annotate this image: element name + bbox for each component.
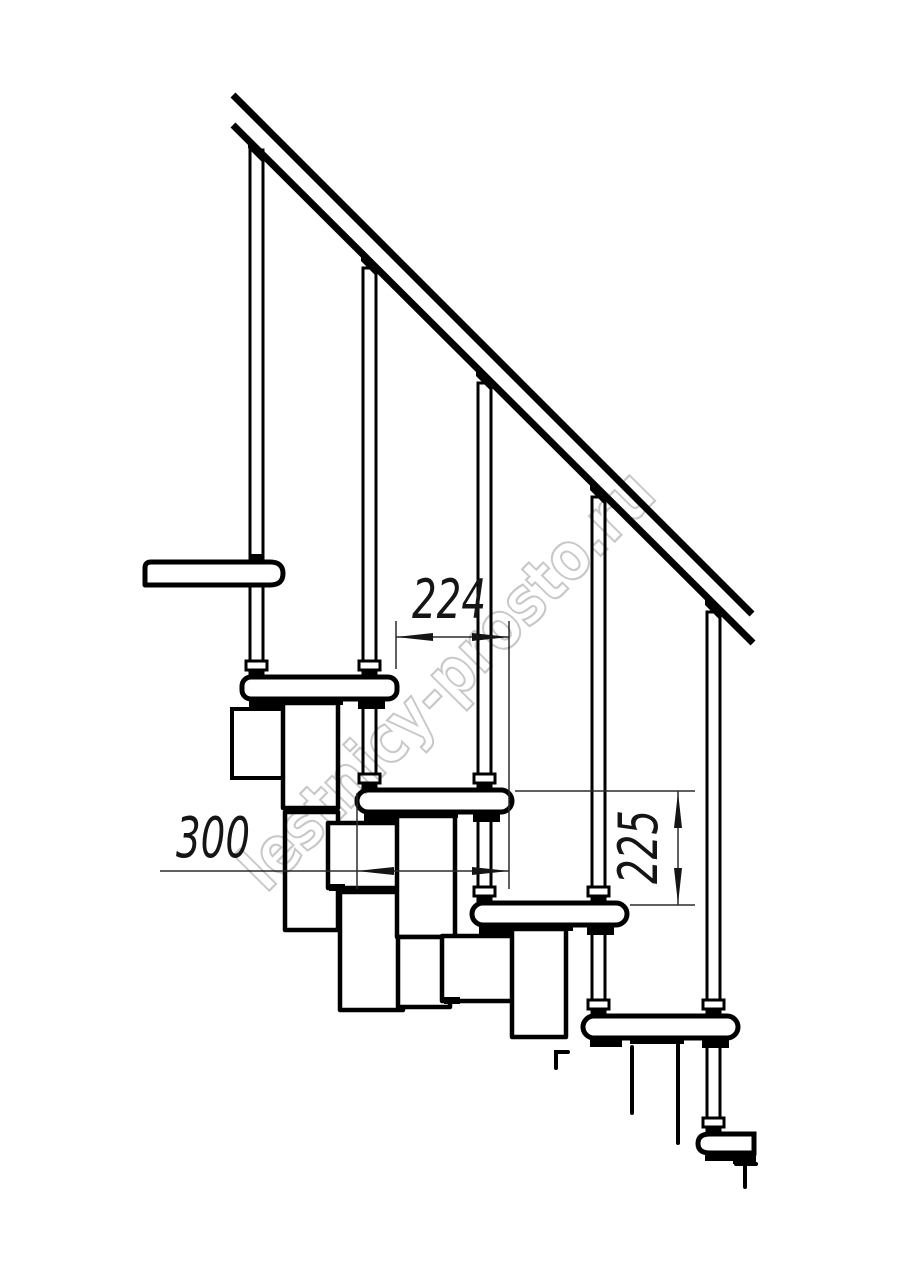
- tread-clamp: [733, 1155, 756, 1164]
- baluster-collar: [703, 1118, 724, 1127]
- baluster-wedge: [477, 896, 493, 903]
- tread-clamp: [590, 1039, 622, 1047]
- tread-5: [698, 1134, 754, 1153]
- tread-clamp: [519, 925, 573, 931]
- baluster-collar: [703, 1000, 724, 1009]
- tread-clamp: [289, 699, 343, 705]
- module-square: [442, 936, 518, 1001]
- baluster-clamp: [473, 813, 500, 822]
- tread-clamp: [705, 1153, 737, 1161]
- staircase-drawing: 224 300 225 lestnicy-prosto.ru: [0, 0, 914, 1280]
- baluster: [250, 150, 263, 677]
- tread-clamp: [249, 700, 281, 708]
- dimension-text-225: 225: [607, 810, 670, 884]
- baluster-collar: [588, 887, 609, 896]
- tread-clamp: [404, 812, 458, 818]
- baluster-collar: [474, 774, 495, 783]
- baluster-collar: [588, 1000, 609, 1009]
- handrail: [233, 95, 753, 643]
- module-block: [512, 929, 566, 1037]
- baluster-collar: [474, 887, 495, 896]
- tread-clamp: [364, 813, 396, 821]
- baluster-clamp: [702, 1039, 729, 1048]
- baluster-collar: [359, 661, 380, 670]
- break-hook: [556, 1052, 568, 1068]
- baluster-wedge: [249, 670, 265, 677]
- module-block: [397, 816, 455, 937]
- tread-clamp: [630, 1038, 684, 1044]
- tread-1: [242, 677, 397, 699]
- baluster-collar: [246, 661, 267, 670]
- module-block: [340, 892, 403, 1010]
- baluster-wedge: [477, 783, 493, 790]
- baluster-wedge: [362, 670, 378, 677]
- tread-clamp: [479, 926, 511, 934]
- tread-4: [583, 1016, 738, 1038]
- baluster-wedge: [706, 1009, 722, 1016]
- baluster-wedge: [591, 896, 607, 903]
- baluster-clamp: [587, 926, 614, 935]
- arrow-up: [674, 792, 682, 828]
- technical-drawing-page: 224 300 225 lestnicy-prosto.ru: [0, 0, 914, 1280]
- baluster-wedge: [706, 1127, 722, 1134]
- baluster-wedge: [591, 1009, 607, 1016]
- baluster: [707, 612, 720, 1134]
- tread-3: [472, 903, 627, 925]
- module-clamp: [329, 884, 345, 891]
- handrail-end-cap: [145, 562, 283, 585]
- arrow-left: [396, 633, 433, 641]
- arrow-down: [674, 868, 682, 904]
- module-clamp: [444, 997, 460, 1004]
- baluster-joint-wedge: [249, 554, 264, 563]
- handrail-bottom-line: [233, 125, 753, 643]
- landing-notch-outline: [232, 709, 283, 778]
